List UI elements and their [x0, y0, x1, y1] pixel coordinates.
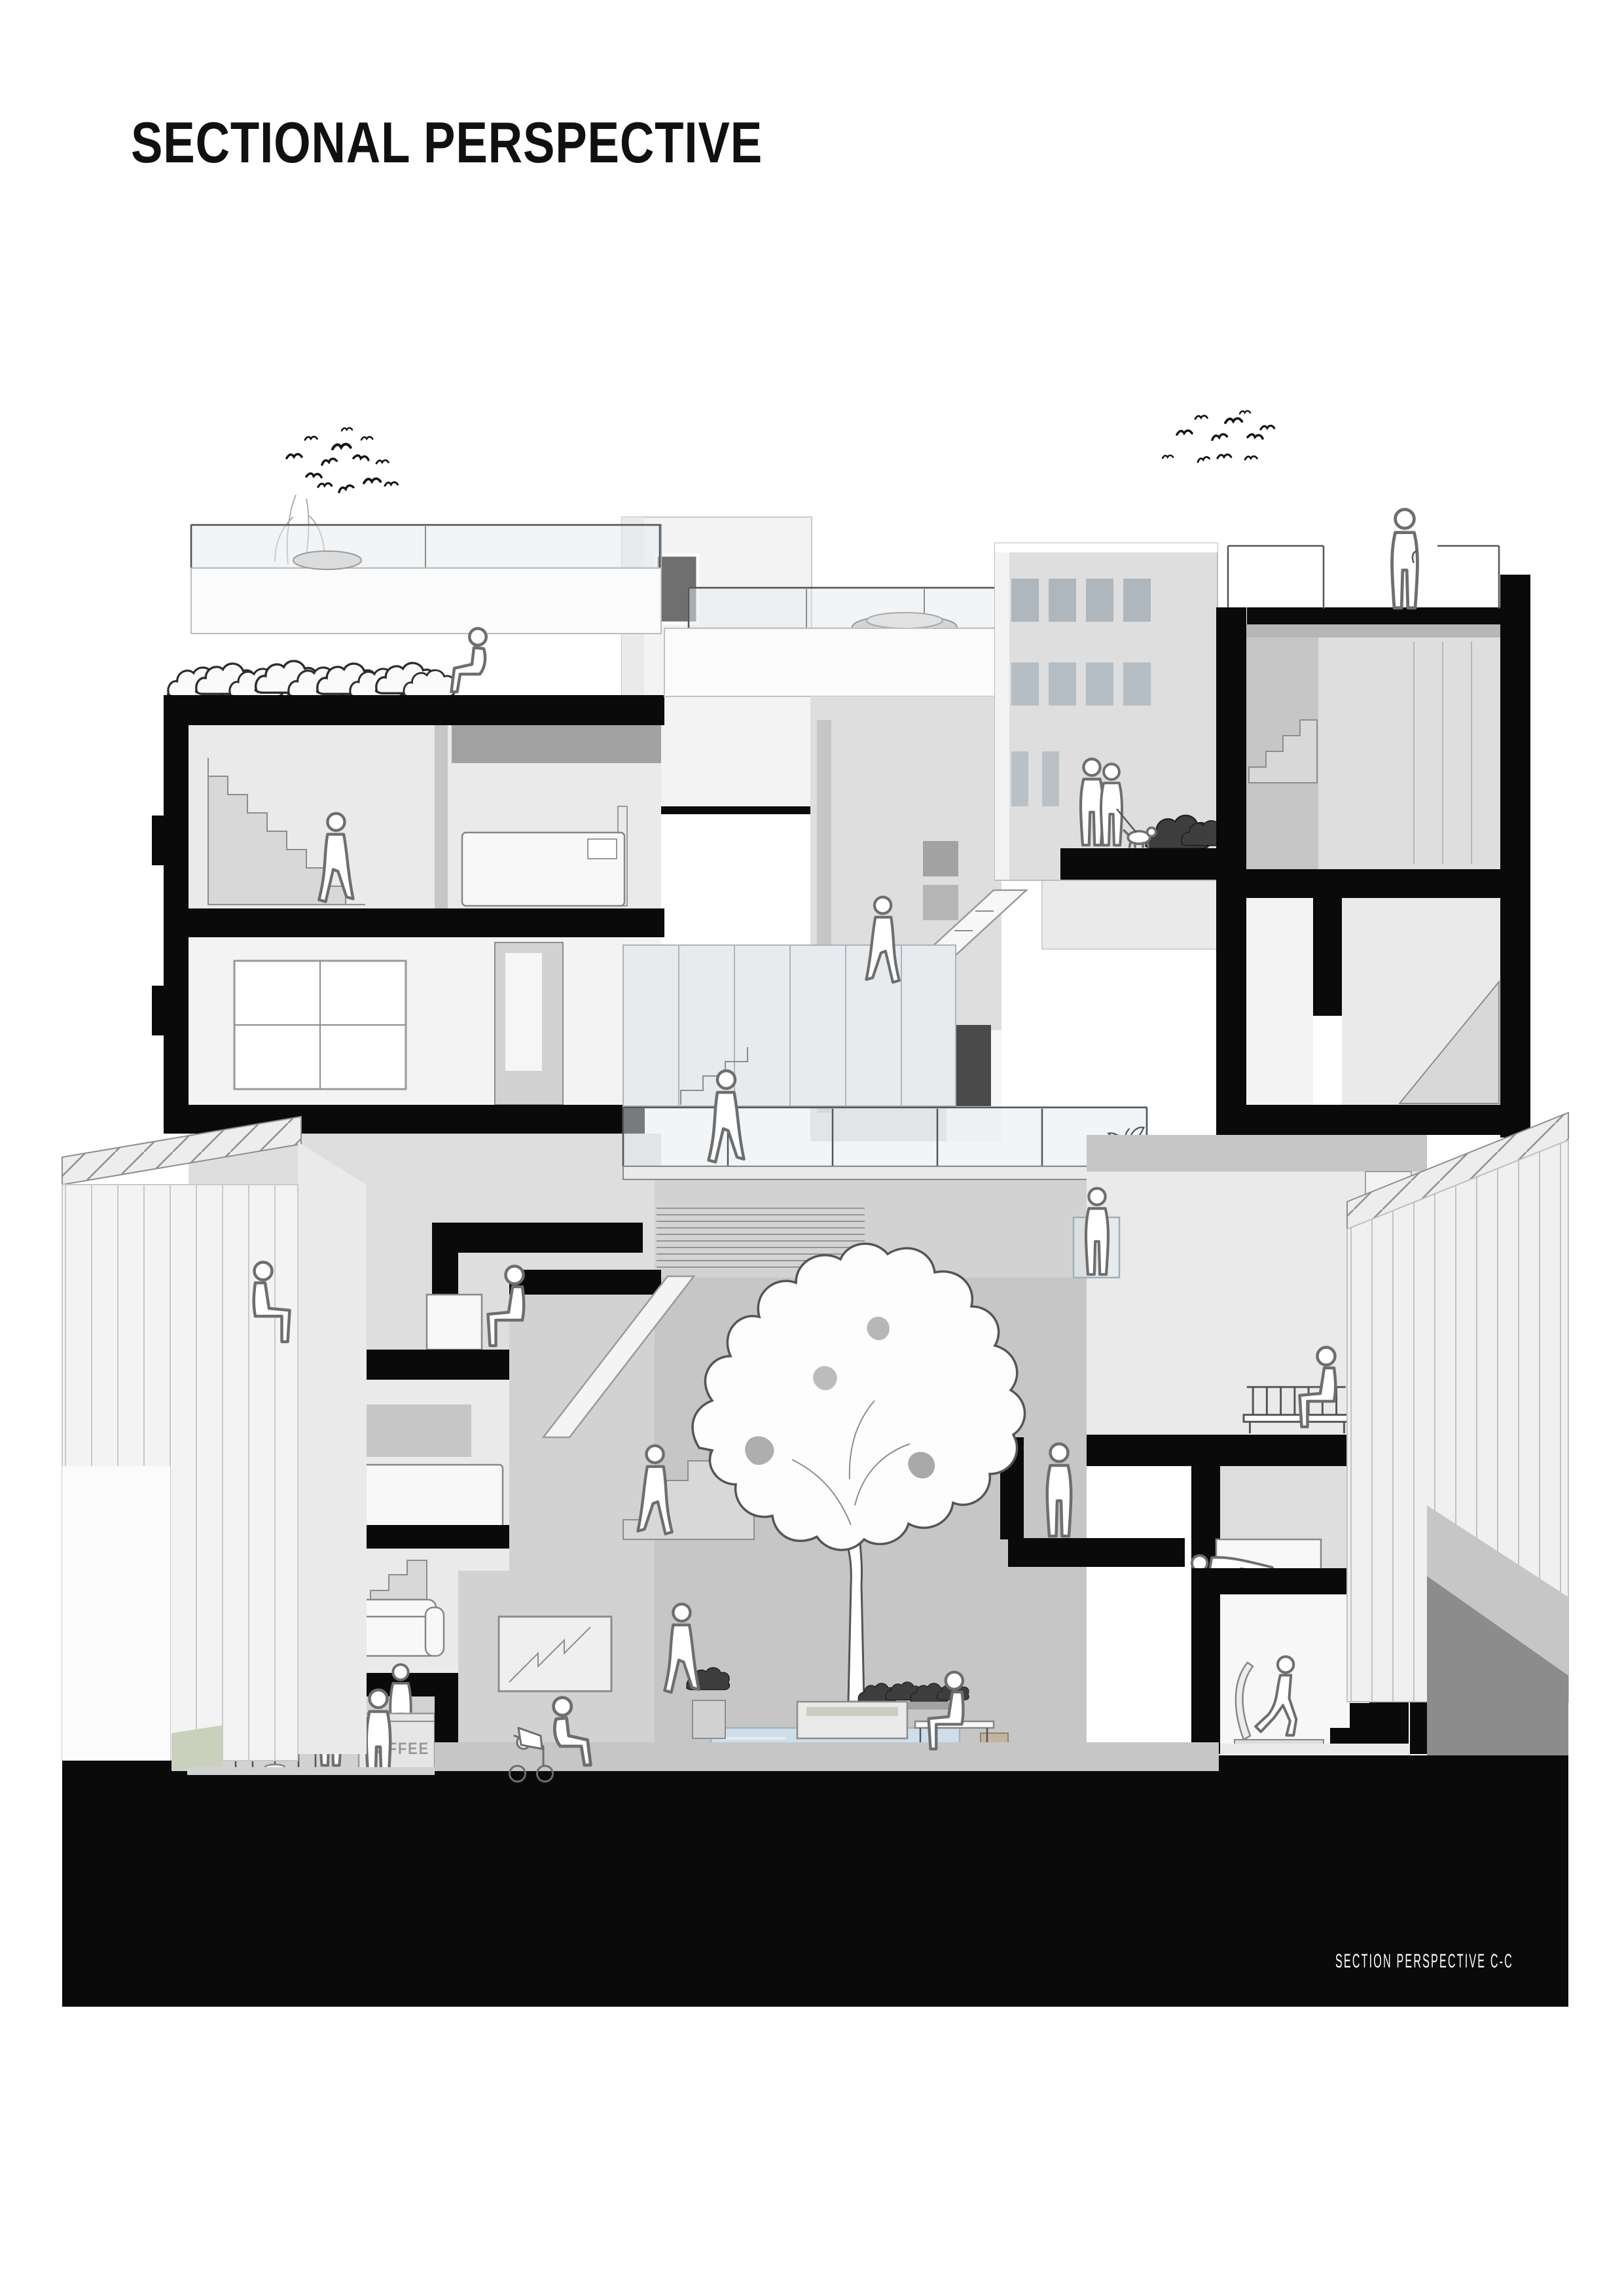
neighbour-right: [1347, 1113, 1568, 1759]
lobby-floor: [435, 1742, 1219, 1771]
small-room: [1246, 898, 1313, 1105]
drawing-caption: SECTION PERSPECTIVE C-C: [1335, 1950, 1513, 1972]
dark-doorway: [950, 1025, 991, 1106]
roof-vent: [293, 551, 361, 569]
floor-slab: [189, 908, 664, 937]
floor-slab: [1216, 1105, 1530, 1135]
cut-wall: [1191, 1466, 1220, 1754]
right-cut-unit: [1216, 546, 1530, 1138]
courtyard-ledge: [1008, 1538, 1185, 1567]
cut-wall: [1500, 575, 1530, 1138]
presentation-board: SECTIONAL PERSPECTIVE: [0, 0, 1624, 2296]
floor-slab: [164, 695, 664, 725]
gym-floor: [1220, 1744, 1410, 1755]
cut-wall: [164, 695, 189, 1134]
study-roof-slab: [432, 1223, 643, 1253]
planter-box: [693, 1700, 725, 1738]
left-unit-upper: [152, 695, 664, 1134]
page-title: SECTIONAL PERSPECTIVE: [131, 110, 763, 175]
neighbour-left: [62, 1117, 367, 1761]
floor-slab: [1246, 869, 1530, 898]
roof-slab: [1247, 607, 1501, 624]
stairwell-window: [499, 1617, 611, 1691]
foreground-wall: [62, 1466, 170, 1761]
cafe-floor: [187, 1767, 435, 1775]
desk: [427, 1295, 482, 1350]
cut-wall: [1216, 607, 1246, 1138]
lawn-wedge: [171, 1725, 223, 1771]
